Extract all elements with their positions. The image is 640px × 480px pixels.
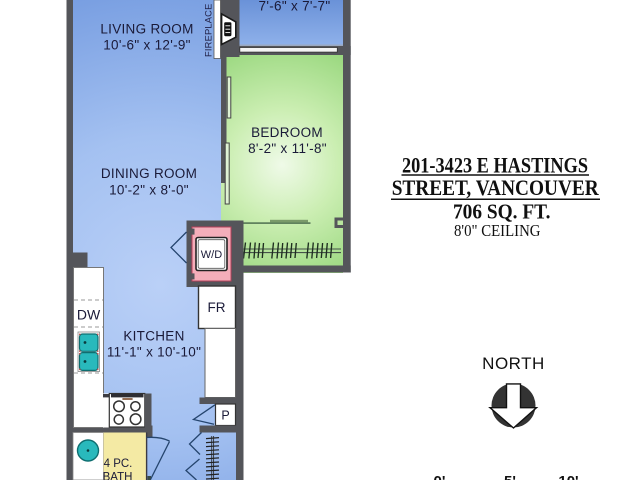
- svg-text:DINING ROOM: DINING ROOM: [101, 166, 197, 181]
- svg-text:STREET, VANCOUVER: STREET, VANCOUVER: [392, 175, 600, 200]
- svg-text:7'-6" x 7'-7": 7'-6" x 7'-7": [259, 0, 331, 14]
- svg-text:BEDROOM: BEDROOM: [251, 125, 323, 140]
- svg-text:4 PC.: 4 PC.: [104, 458, 133, 470]
- svg-text:8'0" CEILING: 8'0" CEILING: [454, 221, 541, 240]
- svg-text:FIREPLACE: FIREPLACE: [204, 4, 214, 57]
- svg-text:706 SQ. FT.: 706 SQ. FT.: [453, 200, 551, 224]
- svg-text:201-3423 E HASTINGS: 201-3423 E HASTINGS: [402, 152, 588, 177]
- svg-text:8'-2" x 11'-8": 8'-2" x 11'-8": [248, 141, 327, 156]
- svg-text:DW: DW: [77, 307, 101, 323]
- svg-text:FR: FR: [208, 300, 226, 315]
- svg-text:0': 0': [434, 473, 446, 480]
- svg-text:BATH: BATH: [103, 472, 133, 480]
- svg-text:P: P: [221, 409, 229, 423]
- svg-text:11'-1" x 10'-10": 11'-1" x 10'-10": [107, 345, 201, 360]
- svg-text:10'-6" x 12'-9": 10'-6" x 12'-9": [103, 38, 191, 53]
- svg-text:NORTH: NORTH: [482, 354, 545, 373]
- svg-text:10': 10': [558, 473, 578, 480]
- svg-text:KITCHEN: KITCHEN: [123, 329, 184, 344]
- svg-text:10'-2" x 8'-0": 10'-2" x 8'-0": [109, 183, 189, 198]
- svg-text:LIVING ROOM: LIVING ROOM: [100, 22, 193, 37]
- svg-text:5': 5': [504, 473, 516, 480]
- svg-text:W/D: W/D: [201, 249, 222, 261]
